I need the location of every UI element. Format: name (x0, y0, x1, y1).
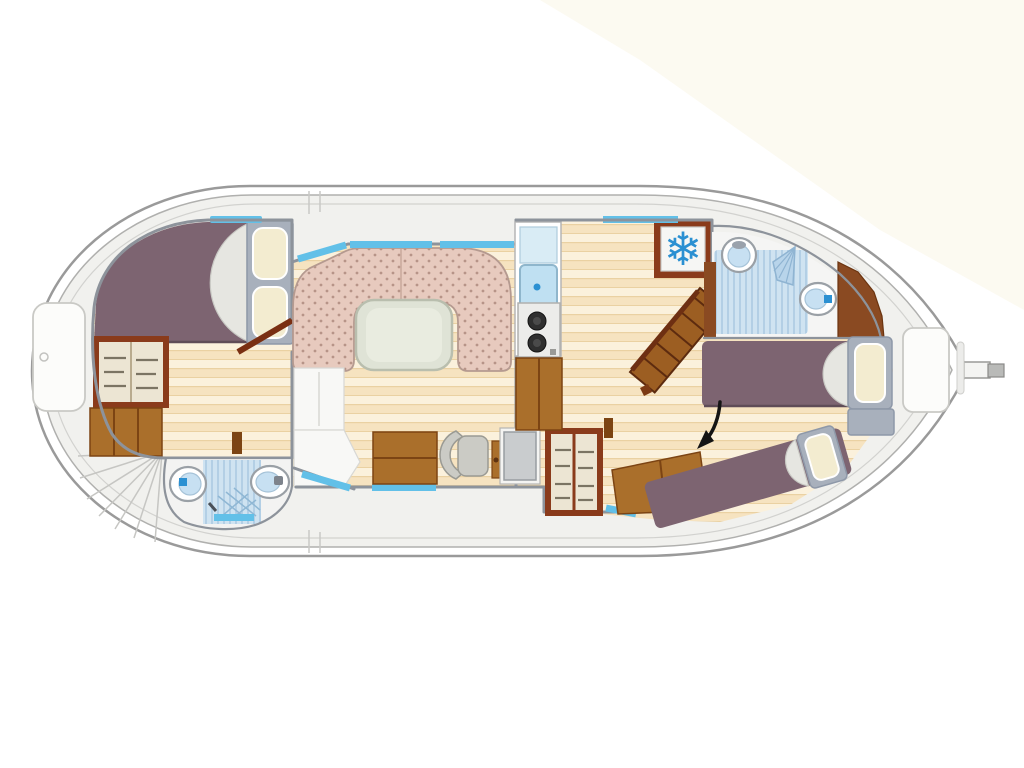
wheel-knob-icon (494, 458, 499, 463)
helm-console (500, 428, 540, 484)
swivel-chair (440, 431, 488, 479)
toilet (800, 283, 836, 315)
floor-plan-page: ❄ (0, 0, 1024, 768)
galley-cabinet (516, 358, 562, 430)
washbasin (722, 238, 756, 272)
partition-wall (704, 262, 716, 338)
shelf-cabinet (545, 428, 603, 516)
boat-floor-plan: ❄ (0, 0, 1024, 768)
single-berth-top (702, 337, 892, 409)
berth-side-shelf (848, 409, 894, 435)
faucet-icon (732, 241, 746, 249)
window (440, 241, 514, 248)
faucet-icon (534, 284, 541, 291)
snowflake-icon: ❄ (664, 222, 703, 276)
window (372, 484, 436, 491)
toilet-seat-icon (824, 295, 832, 303)
faucet-icon (274, 476, 283, 485)
deck-hatch-left (33, 303, 85, 411)
washbasin (251, 466, 289, 498)
toilet (170, 467, 206, 501)
two-burner-hob (518, 303, 560, 357)
door-post (232, 432, 242, 454)
dinette-table (356, 300, 452, 370)
window (350, 241, 432, 248)
pillow (253, 228, 287, 279)
wardrobe (93, 336, 169, 408)
helm-cabinet (373, 432, 437, 484)
transom-strip (957, 342, 964, 394)
cabin-left (90, 216, 296, 458)
drainboard (520, 227, 557, 263)
toilet-seat-icon (179, 478, 187, 486)
deck-hatch-right (903, 328, 949, 412)
refrigerator: ❄ (654, 220, 712, 278)
door-post (604, 418, 613, 438)
rudder (964, 362, 1004, 378)
window (214, 514, 254, 521)
